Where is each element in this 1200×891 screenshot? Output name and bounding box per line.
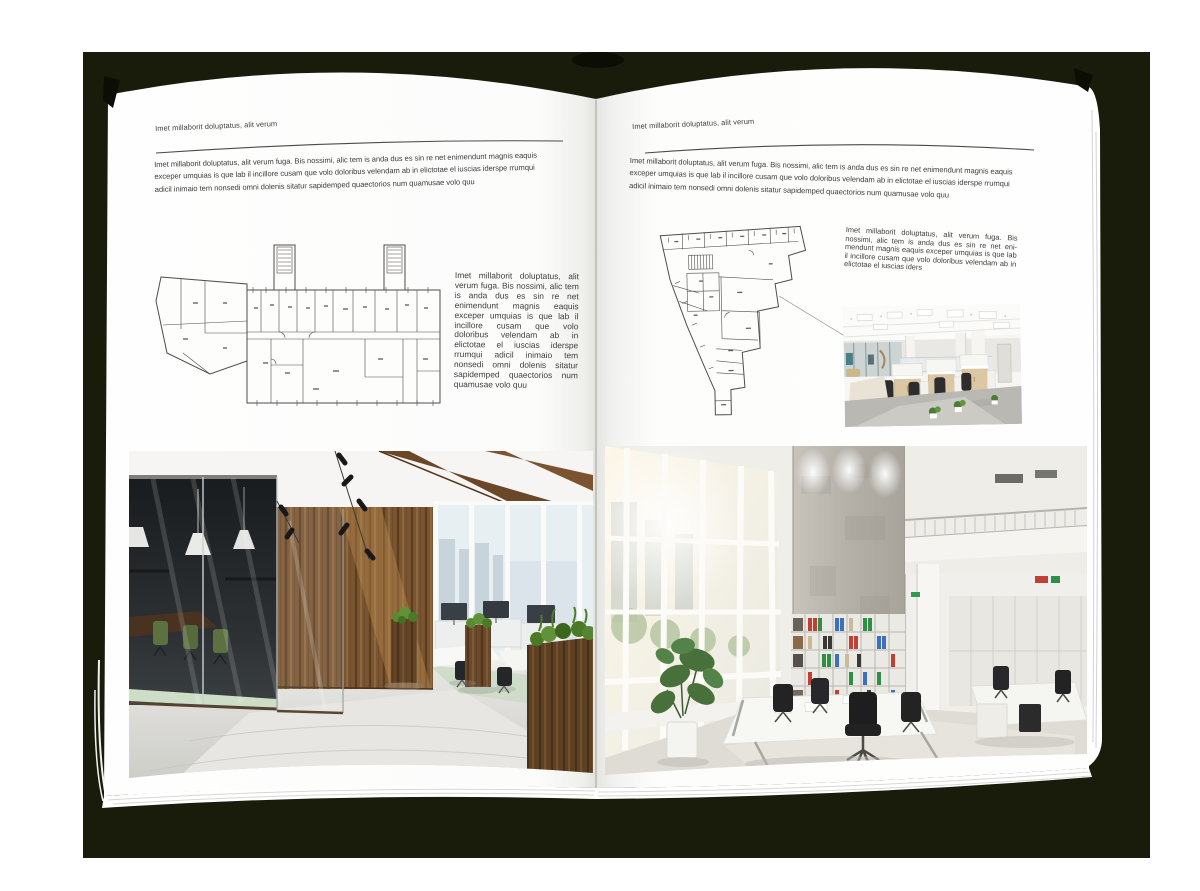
left-page-side-text: Imet millaborit doluptatus, alit verum f…	[454, 271, 579, 391]
exit-sign	[911, 592, 920, 597]
waste-bin	[1019, 704, 1041, 732]
brochure-spread-mockup: Imet millaborit doluptatus, alit verum I…	[0, 0, 1200, 891]
right-office-photo	[605, 446, 1087, 780]
wall-sign-green	[1051, 576, 1060, 583]
left-office-photo	[129, 451, 593, 786]
right-page-side-text: Imet millaborit doluptatus, alit verum f…	[844, 226, 1018, 277]
bookshelf	[791, 614, 905, 703]
monitor	[483, 601, 509, 618]
right-page-small-photo	[843, 304, 1022, 427]
foreground-planter	[527, 607, 593, 786]
mezzanine	[905, 446, 1087, 574]
wall-sign-red	[1035, 576, 1048, 583]
left-floor-plan	[153, 233, 448, 415]
monitor	[441, 603, 467, 620]
door	[998, 344, 1012, 382]
right-floor-plan	[648, 219, 846, 422]
glass-meeting-room	[129, 475, 279, 709]
